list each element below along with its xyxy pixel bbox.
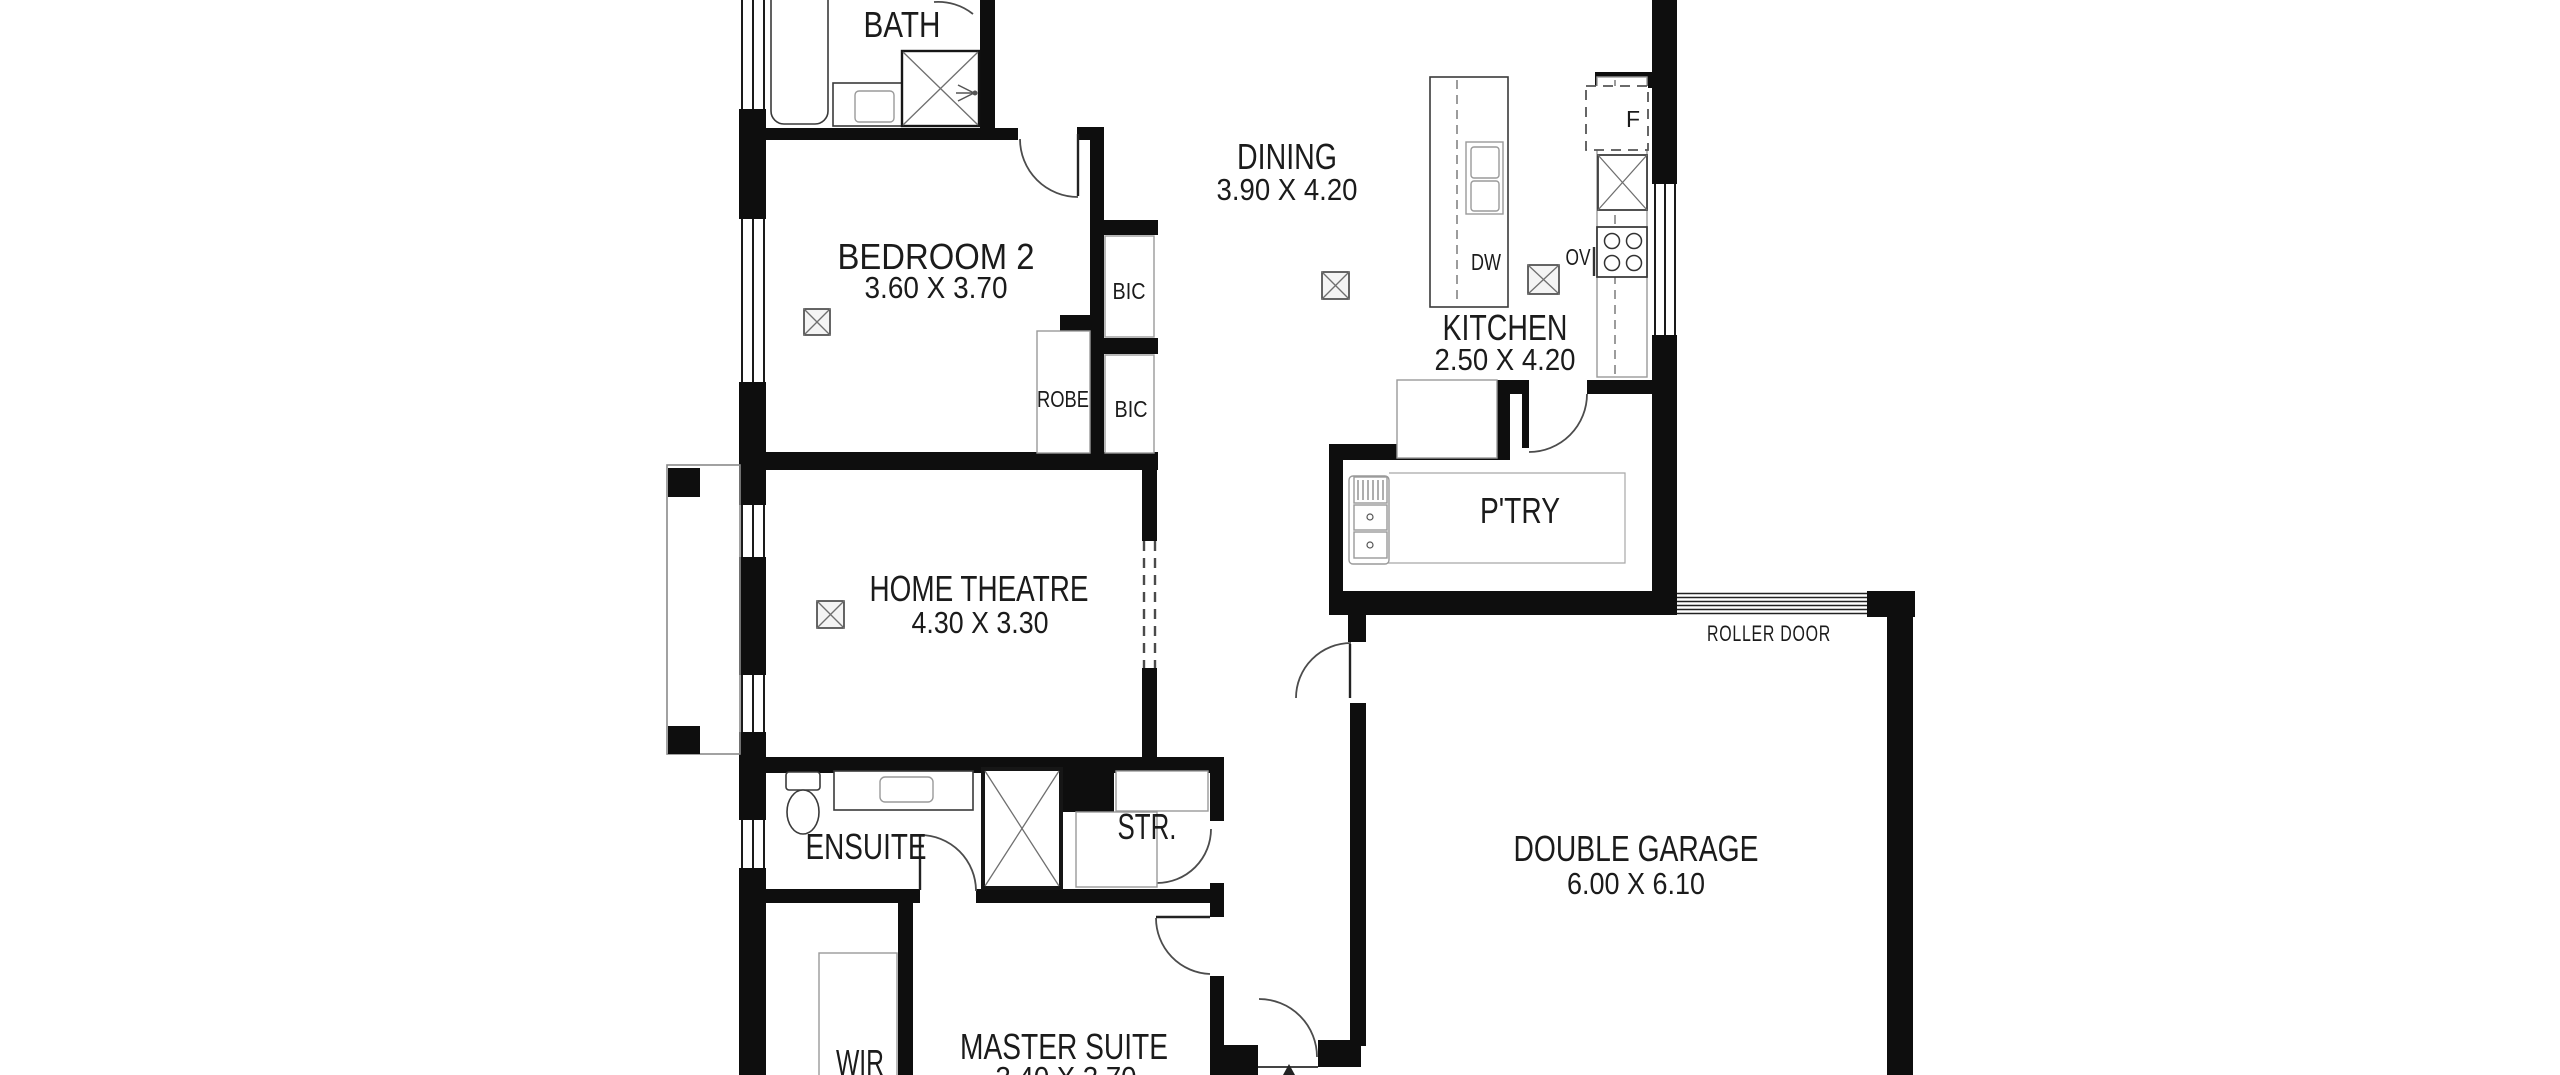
svg-text:BATH: BATH [864,4,941,45]
svg-text:DW: DW [1471,249,1501,275]
svg-text:P'TRY: P'TRY [1480,490,1560,531]
svg-text:HOME THEATRE: HOME THEATRE [870,568,1089,609]
svg-text:BIC: BIC [1115,396,1148,422]
svg-text:3.90 X 4.20: 3.90 X 4.20 [1217,172,1358,207]
svg-text:ROBE: ROBE [1037,386,1089,412]
svg-text:2.50 X 4.20: 2.50 X 4.20 [1435,342,1576,377]
svg-text:ENSUITE: ENSUITE [806,826,927,867]
svg-text:F: F [1626,106,1640,132]
svg-text:WIR: WIR [836,1042,884,1075]
svg-text:ROLLER DOOR: ROLLER DOOR [1707,621,1831,646]
svg-text:3.40 X 3.70: 3.40 X 3.70 [996,1060,1137,1075]
svg-text:3.60 X 3.70: 3.60 X 3.70 [865,270,1008,305]
svg-text:DOUBLE GARAGE: DOUBLE GARAGE [1514,828,1759,869]
svg-text:STR.: STR. [1118,806,1177,847]
svg-text:6.00 X 6.10: 6.00 X 6.10 [1567,866,1705,901]
svg-text:OV: OV [1566,244,1591,270]
svg-text:4.30 X 3.30: 4.30 X 3.30 [912,605,1049,640]
svg-text:DINING: DINING [1237,136,1337,177]
svg-text:BIC: BIC [1113,278,1146,304]
